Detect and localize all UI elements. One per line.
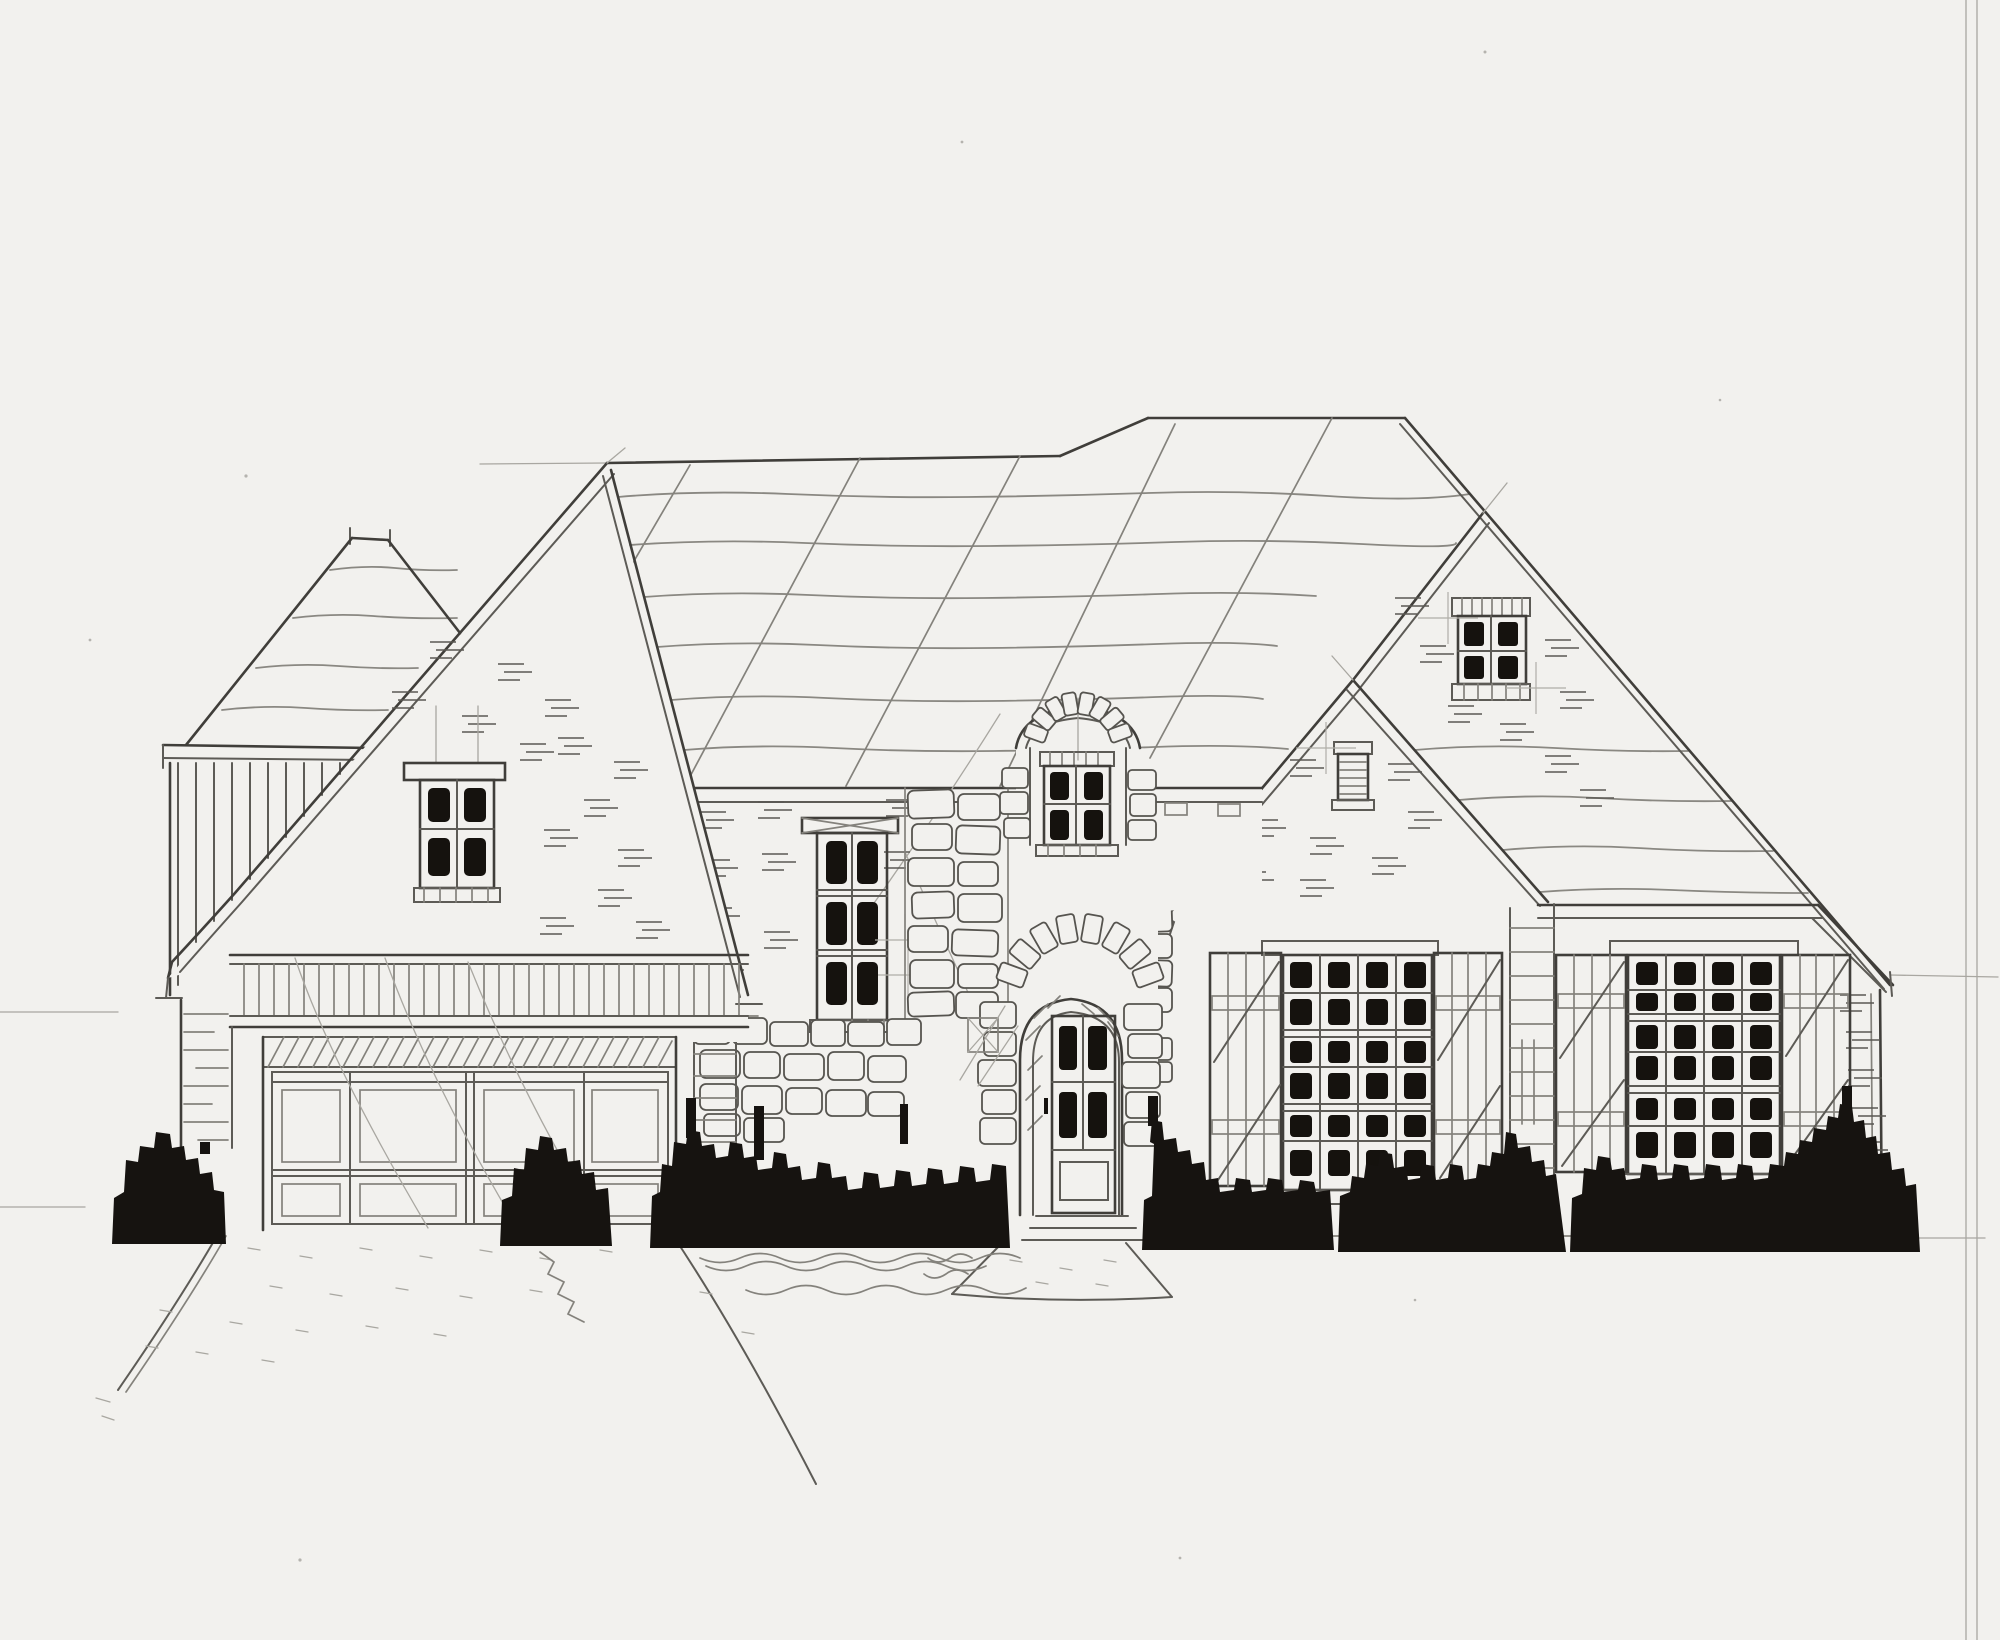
door-handle <box>1044 1098 1048 1114</box>
sketch-sheet: Hand-drawn architectural front elevation… <box>0 0 2000 1640</box>
hedge-sprig <box>1842 1086 1852 1110</box>
hedge-sprig <box>686 1098 696 1138</box>
door-glass-pane <box>1059 1092 1077 1138</box>
elevation-drawing: Hand-drawn architectural front elevation… <box>0 0 2000 1640</box>
door-glass-pane <box>1088 1092 1107 1138</box>
hedge-sprig <box>754 1106 764 1160</box>
hedge-sprig <box>1148 1096 1158 1126</box>
hedge-sprig <box>900 1104 908 1144</box>
small-shrub-mark <box>200 1142 210 1154</box>
door-glass-pane <box>1059 1026 1077 1070</box>
door-glass-pane <box>1088 1026 1107 1070</box>
